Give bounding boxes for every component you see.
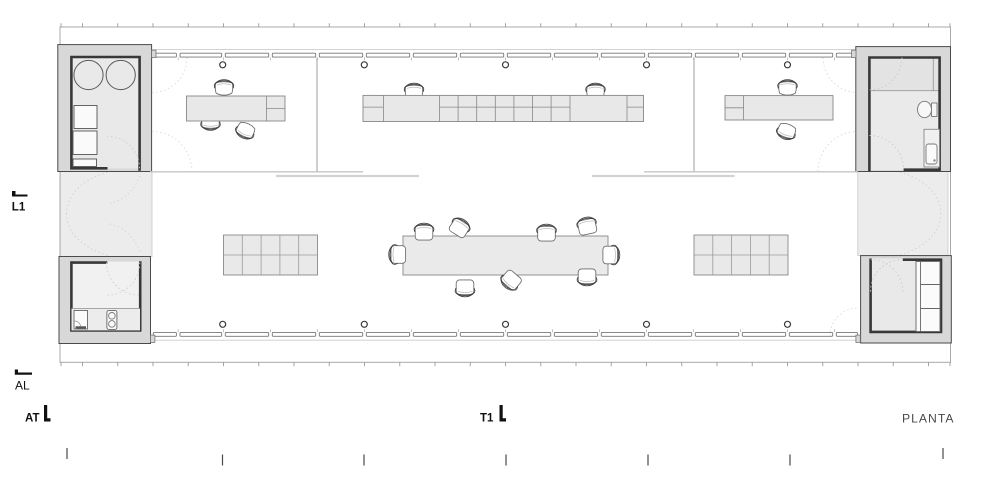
svg-text:PLANTA: PLANTA — [902, 412, 955, 426]
svg-text:T1: T1 — [480, 413, 494, 425]
svg-text:AT: AT — [25, 413, 39, 425]
svg-text:L1: L1 — [12, 202, 26, 214]
svg-text:AL: AL — [15, 379, 30, 393]
